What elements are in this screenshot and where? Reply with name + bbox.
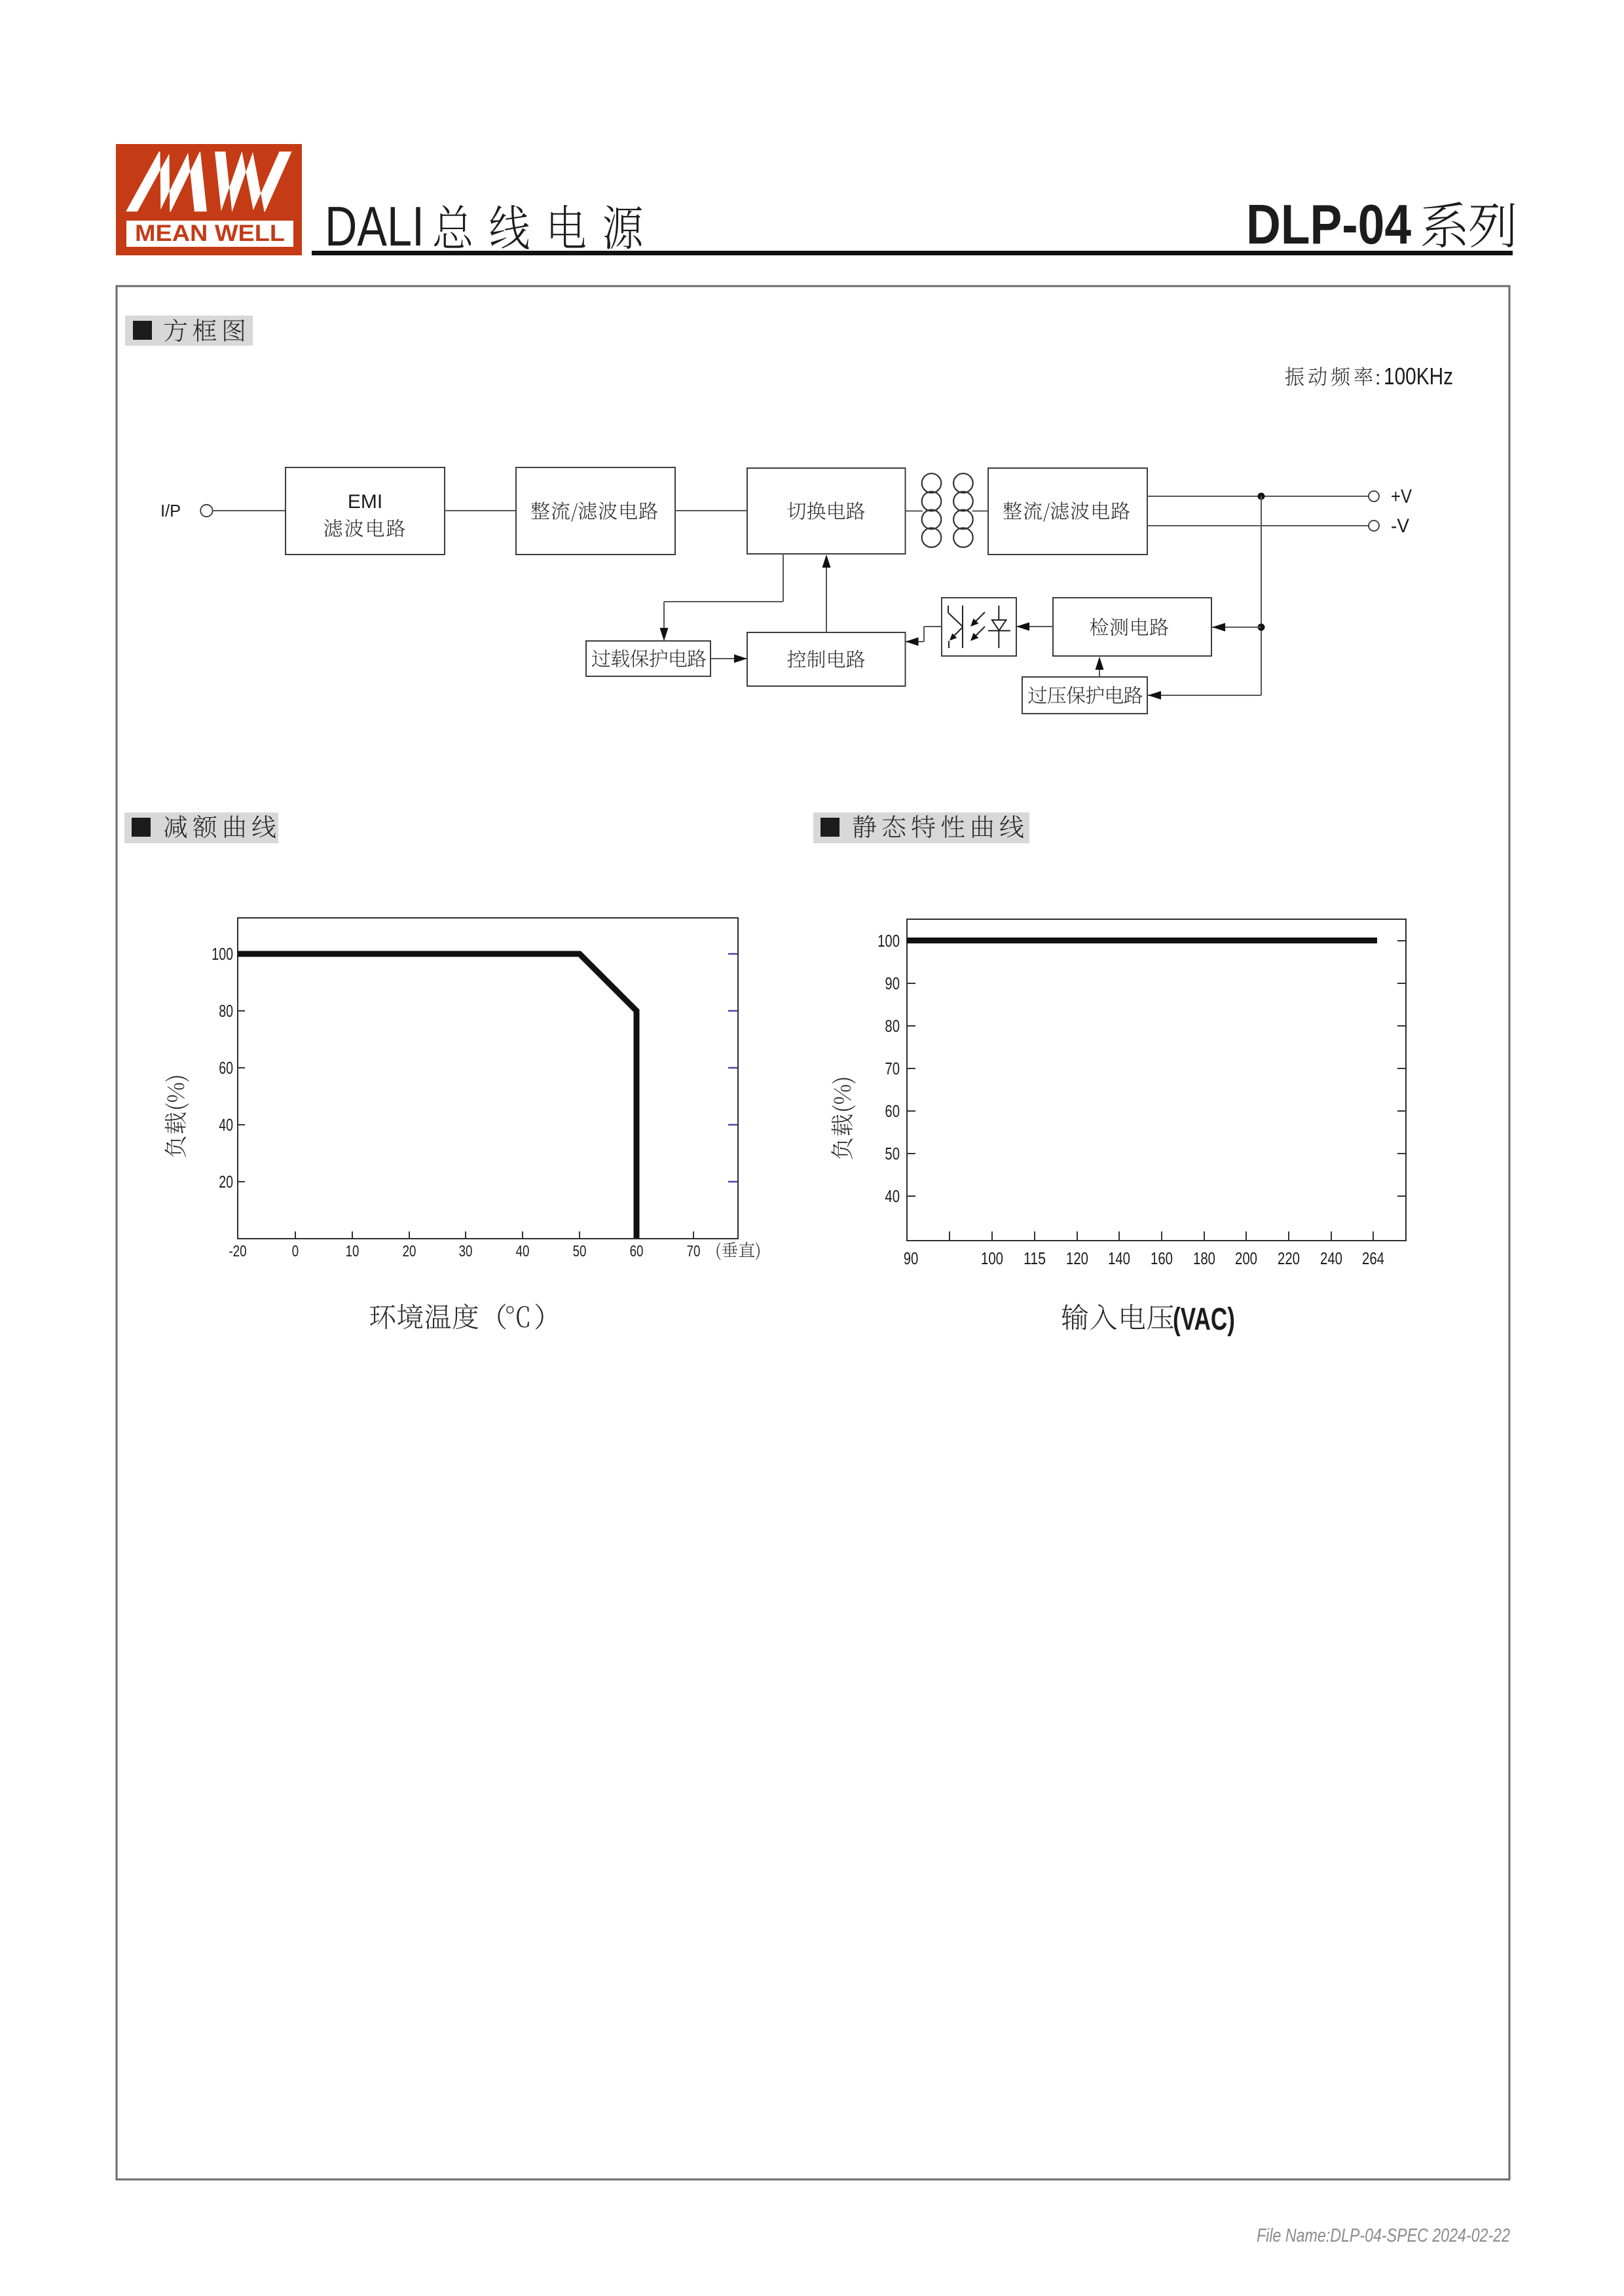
svg-text:I/P: I/P (160, 502, 181, 520)
svg-text:220: 220 (1278, 1248, 1300, 1268)
svg-text:50: 50 (885, 1144, 900, 1163)
svg-text:264: 264 (1362, 1248, 1384, 1268)
svg-text:(VAC): (VAC) (1173, 1302, 1235, 1337)
svg-text:DLP-04: DLP-04 (1246, 194, 1411, 256)
svg-text:60: 60 (630, 1243, 644, 1260)
svg-text:60: 60 (885, 1101, 900, 1121)
svg-text:70: 70 (885, 1059, 900, 1078)
svg-text:40: 40 (219, 1115, 233, 1135)
svg-text:80: 80 (219, 1001, 233, 1021)
svg-text:0: 0 (292, 1243, 299, 1260)
svg-text:50: 50 (573, 1243, 587, 1260)
svg-text:40: 40 (885, 1186, 900, 1206)
svg-text:140: 140 (1108, 1248, 1130, 1268)
svg-text:+V: +V (1391, 486, 1412, 507)
svg-text:20: 20 (403, 1243, 416, 1260)
svg-text:30: 30 (459, 1243, 473, 1260)
svg-text:40: 40 (516, 1243, 530, 1260)
svg-text:90: 90 (904, 1248, 919, 1268)
svg-text:10: 10 (346, 1243, 360, 1260)
svg-text:240: 240 (1320, 1248, 1342, 1268)
svg-text:File Name:DLP-04-SPEC 2024-02: File Name:DLP-04-SPEC 2024-02-22 (1257, 2225, 1510, 2246)
svg-text:180: 180 (1193, 1248, 1215, 1268)
svg-text:MEAN WELL: MEAN WELL (135, 221, 285, 246)
svg-text:100KHz: 100KHz (1384, 363, 1453, 390)
svg-text:120: 120 (1066, 1248, 1088, 1268)
svg-text:70: 70 (687, 1243, 701, 1260)
svg-text:DALI: DALI (325, 196, 424, 258)
svg-text:100: 100 (981, 1248, 1003, 1268)
svg-text:100: 100 (877, 931, 900, 951)
svg-text:115: 115 (1024, 1248, 1046, 1268)
svg-text:-20: -20 (229, 1243, 246, 1260)
svg-text:-V: -V (1391, 515, 1409, 537)
svg-text:EMI: EMI (348, 491, 382, 513)
svg-text:80: 80 (885, 1016, 900, 1036)
svg-text:100: 100 (212, 944, 233, 964)
svg-text:200: 200 (1235, 1248, 1257, 1268)
svg-text:90: 90 (885, 974, 900, 993)
svg-text:60: 60 (219, 1058, 233, 1078)
svg-text:20: 20 (219, 1172, 233, 1192)
svg-text:160: 160 (1151, 1248, 1173, 1268)
